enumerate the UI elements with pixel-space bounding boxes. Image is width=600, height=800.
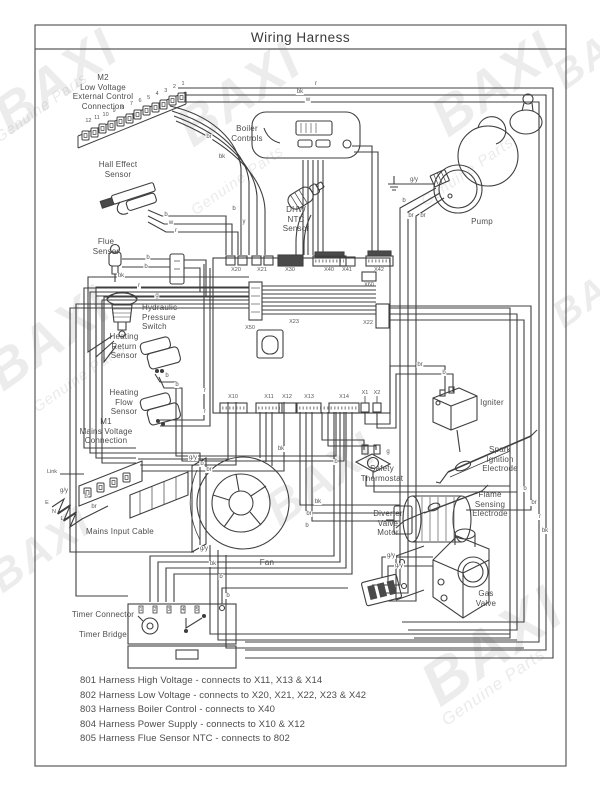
spark-ignition-electrode-label: SparkIgnitionElectrode	[440, 445, 560, 474]
pump-label: Pump	[422, 217, 542, 227]
terminal-label-link: Link	[47, 469, 57, 475]
wire-label: r	[314, 81, 318, 87]
m2-terminal-number: 4	[156, 91, 159, 97]
connector-label-x41: X41	[342, 267, 352, 273]
wire-label: b	[225, 593, 230, 599]
wire-label: r	[538, 514, 542, 520]
wire-label: br	[305, 511, 312, 517]
wire-label: br	[90, 504, 97, 510]
harness-legend: 801 Harness High Voltage - connects to X…	[80, 674, 366, 747]
connector-label-x10: X10	[228, 394, 238, 400]
timer-terminal-number: 2	[153, 607, 156, 613]
m1-connection-label: M1Mains VoltageConnection	[46, 417, 166, 446]
m2-terminal-number: 11	[94, 115, 100, 121]
wire-label: b	[145, 255, 150, 261]
m2-terminal-number: 6	[138, 98, 141, 104]
connector-label-x11: X11	[264, 394, 273, 400]
connector-label-x14: X14	[339, 394, 349, 400]
m2-terminal-number: 5	[147, 95, 150, 101]
flue-sensor-label: FlueSensor	[46, 237, 166, 256]
wire-label: bk	[117, 273, 125, 279]
wire-label: bk	[218, 154, 226, 160]
m2-terminal-number: 9	[113, 108, 116, 114]
wire-label: b	[304, 523, 309, 529]
wire-label: bk	[209, 561, 217, 567]
wire-label: b	[163, 212, 168, 218]
wire-label: g/y	[59, 488, 69, 494]
safety-thermostat-label: SafetyThermostat	[322, 464, 442, 483]
page-title: Wiring Harness	[35, 27, 566, 49]
wire-label: b	[522, 486, 527, 492]
connector-label-x40: X40	[324, 267, 334, 273]
connector-label-x22: X22	[363, 320, 373, 326]
timer-terminal-number: 4	[181, 607, 184, 613]
terminal-label-l: L	[60, 516, 63, 522]
heating-return-sensor-label: HeatingReturnSensor	[64, 332, 184, 361]
connector-label-x12: X12	[282, 394, 292, 400]
wire-label: b	[231, 206, 236, 212]
wire-label: bk	[296, 89, 304, 95]
wire-label: b	[333, 459, 338, 465]
connector-label-x42: X42	[374, 267, 384, 273]
dhw-ntc-sensor-label: DHWNTCSensor	[236, 205, 356, 234]
connector-label-x20: X20	[231, 267, 241, 273]
wire-label: r	[203, 409, 207, 415]
wire-label: b	[218, 574, 223, 580]
wire-label: g	[385, 449, 390, 455]
wire-label: b	[164, 373, 169, 379]
timer-connector-label: Timer Connector	[43, 610, 163, 620]
wire-label: r	[203, 388, 207, 394]
wire-label: br	[205, 467, 212, 473]
m2-terminal-number: 1	[181, 81, 184, 87]
legend-line: 803 Harness Boiler Control - connects to…	[80, 703, 366, 718]
legend-line: 802 Harness Low Voltage - connects to X2…	[80, 689, 366, 704]
wire-label: w	[168, 220, 174, 226]
mains-input-cable-label: Mains Input Cable	[60, 527, 180, 537]
wire-label: b	[143, 264, 148, 270]
wire-label: w	[305, 97, 311, 103]
wire-label: g/y	[199, 546, 209, 552]
timer-terminal-number: 1	[139, 607, 142, 613]
m2-terminal-number: 3	[164, 88, 167, 94]
connector-label-x30: X30	[285, 267, 295, 273]
gas-valve-label: GasValve	[426, 589, 546, 608]
timer-terminal-number: 3	[167, 607, 170, 613]
wire-label: b	[174, 382, 179, 388]
wire-label: g/y	[188, 455, 198, 461]
wire-label: br	[530, 500, 537, 506]
hall-effect-sensor-label: Hall EffectSensor	[58, 160, 178, 179]
wire-label: g	[154, 293, 159, 299]
wire-label: b	[199, 461, 204, 467]
m2-terminal-number: 7	[130, 101, 133, 107]
igniter-label: Igniter	[432, 398, 552, 408]
legend-line: 805 Harness Flue Sensor NTC - connects t…	[80, 732, 366, 747]
m2-connection-label: M2Low VoltageExternal ControlConnection	[43, 73, 163, 111]
m2-terminal-number: 12	[85, 118, 91, 124]
legend-line: 804 Harness Power Supply - connects to X…	[80, 718, 366, 733]
m2-terminal-number: 2	[173, 84, 176, 90]
hydraulic-pressure-switch-label: HydraulicPressureSwitch	[142, 303, 212, 332]
wire-label: br	[407, 213, 414, 219]
connector-label-x2: X2	[374, 390, 381, 396]
wire-label: g/y	[409, 177, 419, 183]
wire-label: br	[419, 213, 426, 219]
wire-label: br	[205, 134, 212, 140]
connector-label-x1: X1	[362, 390, 369, 396]
wire-label: y	[242, 219, 247, 225]
m2-terminal-number: 8	[121, 105, 124, 111]
legend-line: 801 Harness High Voltage - connects to X…	[80, 674, 366, 689]
timer-terminal-number: 5	[195, 607, 198, 613]
fan-label: Fan	[207, 558, 327, 568]
wire-label: bk	[541, 528, 549, 534]
wire-label: r	[174, 228, 178, 234]
wire-label: b	[401, 198, 406, 204]
connector-label-x50: X50	[245, 325, 255, 331]
wire-label: b	[83, 494, 88, 500]
connector-label-x21: X21	[257, 267, 267, 273]
wire-label: bk	[314, 499, 322, 505]
connector-label-x23: X23	[289, 319, 299, 325]
heating-flow-sensor-label: HeatingFlowSensor	[64, 388, 184, 417]
wire-label: bk	[277, 446, 285, 452]
m2-terminal-number: 10	[103, 112, 109, 118]
terminal-label-n: N	[52, 509, 56, 515]
connector-label-x60: X60	[364, 282, 374, 288]
wire-label: r	[137, 283, 141, 289]
connector-label-x13: X13	[304, 394, 314, 400]
timer-bridge-label: Timer Bridge	[43, 630, 163, 640]
wire-label: g/y	[386, 553, 396, 559]
wire-label: b	[441, 370, 446, 376]
terminal-label-e: E	[45, 500, 49, 506]
wire-label: g/y	[394, 563, 404, 569]
wire-label: br	[416, 362, 423, 368]
